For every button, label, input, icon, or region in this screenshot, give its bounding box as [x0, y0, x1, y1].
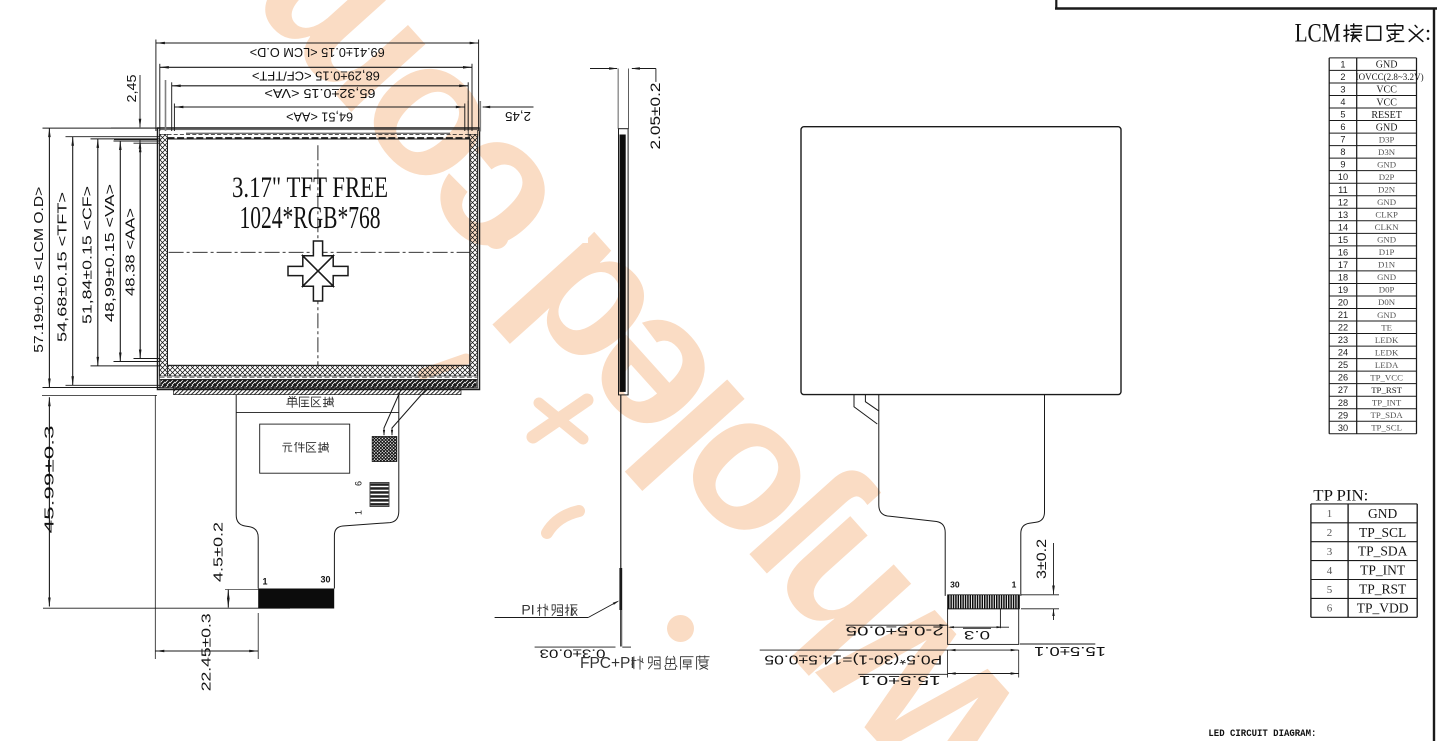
svg-text:22.45±0.3: 22.45±0.3	[199, 613, 214, 691]
svg-text:TP_VCC: TP_VCC	[1370, 372, 1403, 382]
svg-text:GND: GND	[1376, 122, 1398, 133]
svg-text:19: 19	[1338, 285, 1348, 295]
svg-text:TP_SCL: TP_SCL	[1359, 525, 1406, 540]
svg-text:6: 6	[1327, 603, 1333, 615]
svg-text:25: 25	[1338, 360, 1348, 370]
svg-text:9: 9	[1340, 160, 1345, 170]
svg-text:8: 8	[1340, 147, 1345, 157]
svg-text:64,51 <AA>: 64,51 <AA>	[286, 110, 353, 125]
svg-text:23: 23	[1338, 335, 1348, 345]
svg-text:4: 4	[1340, 97, 1345, 107]
svg-text:LEDK: LEDK	[1375, 335, 1399, 345]
svg-text:GND: GND	[1377, 197, 1396, 207]
svg-text:LEDA: LEDA	[1375, 360, 1399, 370]
svg-text:68,29±0.15 <CF/TFT>: 68,29±0.15 <CF/TFT>	[252, 69, 380, 84]
svg-text:2,45: 2,45	[125, 74, 139, 102]
svg-text:GND: GND	[1368, 506, 1397, 521]
svg-text:D0N: D0N	[1378, 297, 1396, 307]
svg-text:18: 18	[1338, 272, 1348, 282]
svg-text:4.5±0.2: 4.5±0.2	[211, 522, 226, 582]
svg-text:TP_SDA: TP_SDA	[1358, 544, 1408, 559]
svg-text:17: 17	[1338, 260, 1348, 270]
svg-text:TP PIN:: TP PIN:	[1313, 488, 1368, 505]
svg-text:GND: GND	[1377, 272, 1396, 282]
svg-text:TP_SDA: TP_SDA	[1370, 410, 1403, 420]
svg-text:13: 13	[1338, 210, 1348, 220]
svg-text:1: 1	[1327, 508, 1333, 520]
svg-text:14: 14	[1338, 222, 1348, 232]
svg-text:45.99±0.3: 45.99±0.3	[42, 425, 57, 533]
svg-text:15: 15	[1338, 235, 1348, 245]
svg-text:15.5±0.1: 15.5±0.1	[859, 673, 941, 687]
svg-text:1024*RGB*768: 1024*RGB*768	[240, 200, 381, 235]
svg-text:TE: TE	[1381, 322, 1392, 332]
svg-text:1: 1	[262, 577, 267, 587]
svg-text:10: 10	[1338, 172, 1348, 182]
svg-text:2.05±0.2: 2.05±0.2	[647, 82, 663, 149]
svg-text:2: 2	[1327, 527, 1333, 539]
svg-text:TP_RST: TP_RST	[1359, 581, 1407, 596]
svg-text:LEDK: LEDK	[1375, 347, 1399, 357]
svg-text:2,45: 2,45	[505, 109, 531, 123]
svg-text:30: 30	[1338, 423, 1348, 433]
svg-text:TP_INT: TP_INT	[1360, 563, 1406, 578]
svg-text:6: 6	[354, 481, 364, 486]
svg-text:57.19±0.15 <LCM O.D>: 57.19±0.15 <LCM O.D>	[31, 187, 46, 353]
svg-text:51,84±0.15 <CF>: 51,84±0.15 <CF>	[80, 186, 95, 324]
svg-text:TP_VDD: TP_VDD	[1357, 600, 1409, 615]
svg-text:TP_RST: TP_RST	[1371, 385, 1402, 395]
svg-text:TP_INT: TP_INT	[1372, 397, 1402, 407]
svg-text:22: 22	[1338, 323, 1348, 333]
svg-text:GND: GND	[1376, 60, 1398, 71]
svg-text::: :	[1425, 20, 1431, 45]
svg-text:48,99±0.15 <VA>: 48,99±0.15 <VA>	[102, 184, 117, 322]
svg-text:2: 2	[1340, 72, 1345, 82]
svg-text:29: 29	[1338, 410, 1348, 420]
svg-text:RESET: RESET	[1371, 110, 1402, 121]
svg-text:TP_SCL: TP_SCL	[1371, 423, 1402, 433]
svg-text:1: 1	[354, 510, 364, 515]
svg-text:FPC+PI: FPC+PI	[580, 655, 635, 672]
svg-text:28: 28	[1338, 398, 1348, 408]
svg-text:VCC: VCC	[1376, 85, 1397, 96]
svg-text:26: 26	[1338, 373, 1348, 383]
svg-text:0.3: 0.3	[964, 628, 990, 642]
svg-text:LCM: LCM	[1295, 19, 1341, 48]
svg-text:GND: GND	[1377, 159, 1396, 169]
svg-text:1: 1	[1012, 580, 1017, 590]
svg-text:3±0.2: 3±0.2	[1034, 539, 1049, 579]
svg-text:1: 1	[1340, 59, 1345, 69]
svg-text:27: 27	[1338, 385, 1348, 395]
svg-text:15.5±0.1: 15.5±0.1	[1034, 644, 1106, 658]
svg-text:VCC: VCC	[1376, 97, 1397, 108]
svg-text:2-0.5±0.05: 2-0.5±0.05	[846, 624, 944, 638]
svg-text:D1P: D1P	[1379, 247, 1395, 257]
svg-text:69.41±0.15 <LCM O.D>: 69.41±0.15 <LCM O.D>	[250, 45, 385, 60]
svg-text:5: 5	[1340, 110, 1345, 120]
svg-text:IOVCC(2.8~3.2V): IOVCC(2.8~3.2V)	[1356, 72, 1424, 82]
svg-text:LED CIRCUIT DIAGRAM:: LED CIRCUIT DIAGRAM:	[1208, 728, 1316, 740]
svg-text:CLKP: CLKP	[1375, 210, 1398, 220]
svg-text:PI: PI	[521, 602, 534, 618]
svg-text:54,68±0.15 <TFT>: 54,68±0.15 <TFT>	[55, 192, 70, 342]
svg-text:3: 3	[1340, 85, 1345, 95]
svg-text:16: 16	[1338, 247, 1348, 257]
svg-text:11: 11	[1338, 185, 1348, 195]
svg-text:21: 21	[1338, 310, 1348, 320]
svg-text:D0P: D0P	[1379, 285, 1395, 295]
svg-text:12: 12	[1338, 197, 1348, 207]
svg-text:D3P: D3P	[1379, 134, 1395, 144]
svg-text:4: 4	[1327, 565, 1333, 577]
svg-text:D3N: D3N	[1378, 147, 1396, 157]
svg-text:48.38 <AA>: 48.38 <AA>	[123, 208, 138, 296]
svg-text:24: 24	[1338, 348, 1348, 358]
svg-text:30: 30	[950, 580, 960, 590]
svg-text:30: 30	[320, 575, 330, 585]
svg-text:D2P: D2P	[1379, 172, 1395, 182]
svg-text:D1N: D1N	[1378, 260, 1396, 270]
svg-text:65,32±0.15 <VA>: 65,32±0.15 <VA>	[264, 86, 375, 101]
svg-text:6: 6	[1340, 122, 1345, 132]
svg-text:D2N: D2N	[1378, 184, 1396, 194]
svg-text:3: 3	[1327, 546, 1333, 558]
svg-text:5: 5	[1327, 584, 1333, 596]
svg-text:7: 7	[1340, 135, 1345, 145]
svg-text:GND: GND	[1377, 310, 1396, 320]
svg-text:CLKN: CLKN	[1375, 222, 1400, 232]
svg-text:P0.5*(30-1)=14.5±0.05: P0.5*(30-1)=14.5±0.05	[764, 653, 942, 667]
svg-text:GND: GND	[1377, 235, 1396, 245]
svg-text:20: 20	[1338, 298, 1348, 308]
